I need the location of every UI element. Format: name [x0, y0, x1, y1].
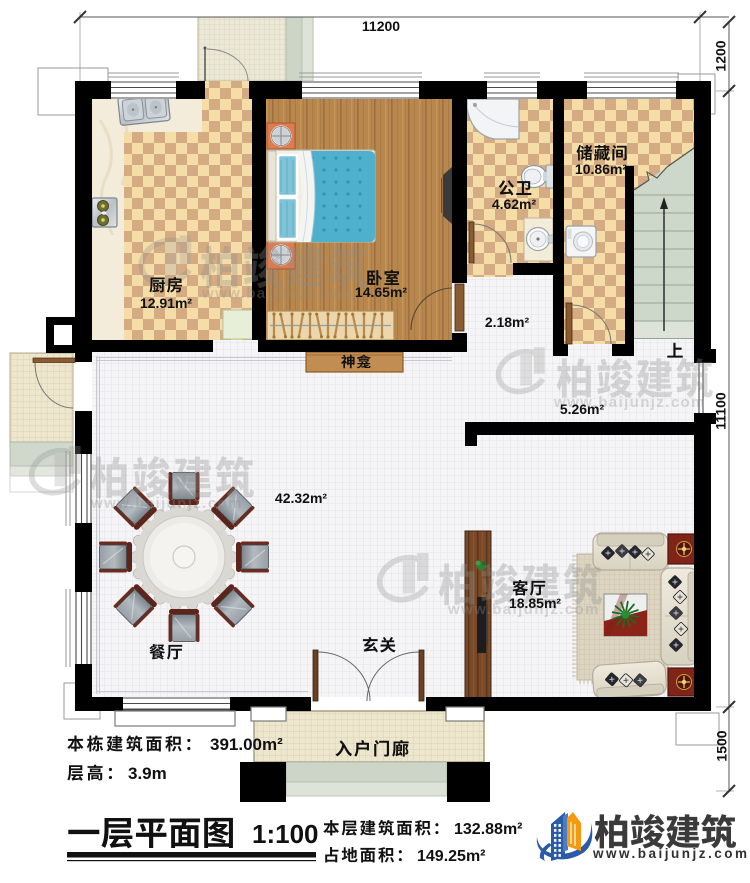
- svg-text:12.91m²: 12.91m²: [140, 295, 192, 311]
- svg-text:11200: 11200: [362, 18, 400, 34]
- svg-text:2.18m²: 2.18m²: [485, 314, 530, 330]
- svg-text:10.86m²: 10.86m²: [575, 161, 627, 177]
- svg-text:1500: 1500: [714, 730, 730, 761]
- svg-text:132.88m²: 132.88m²: [454, 821, 523, 838]
- svg-text:391.00m²: 391.00m²: [210, 735, 283, 754]
- svg-text:1:100: 1:100: [252, 819, 319, 849]
- svg-text:4.62m²: 4.62m²: [492, 196, 537, 212]
- svg-text:www.baijunjz.com: www.baijunjz.com: [592, 846, 750, 861]
- svg-text:42.32m²: 42.32m²: [275, 490, 327, 506]
- svg-text:149.25m²: 149.25m²: [417, 848, 486, 865]
- svg-text:14.65m²: 14.65m²: [355, 284, 407, 300]
- svg-text:11100: 11100: [713, 392, 729, 430]
- svg-text:1200: 1200: [713, 40, 729, 71]
- svg-text:www.baijunjz.com: www.baijunjz.com: [201, 285, 354, 302]
- svg-text:3.9m: 3.9m: [128, 764, 167, 783]
- svg-text:18.85m²: 18.85m²: [509, 595, 561, 611]
- svg-text:5.26m²: 5.26m²: [560, 401, 605, 417]
- svg-text:www.baijunjz.com: www.baijunjz.com: [90, 495, 243, 512]
